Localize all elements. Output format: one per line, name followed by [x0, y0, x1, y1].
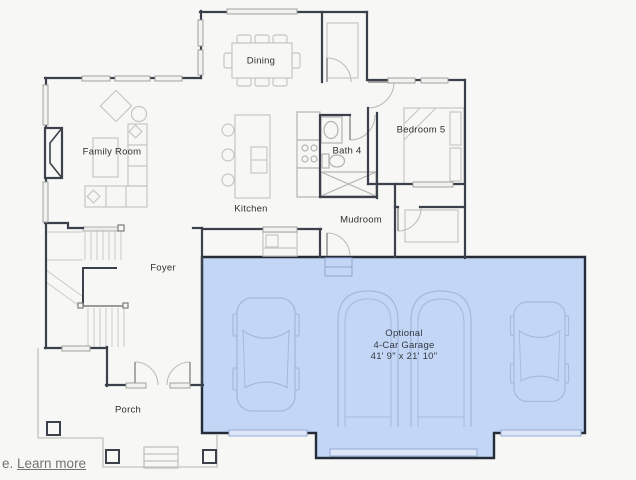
garage-label-line1: Optional: [371, 328, 438, 340]
footer-text-fragment: e.: [2, 456, 13, 471]
garage-door-center: [330, 449, 477, 456]
sofa-icon: [85, 124, 147, 207]
kitchen-counter-icon: [297, 112, 320, 197]
room-label-family-room: Family Room: [83, 147, 142, 158]
armchair-icon: [100, 90, 131, 121]
footer-text: e. Learn more: [2, 456, 86, 471]
coffee-table-icon: [93, 138, 118, 177]
fireplace-icon: [45, 128, 62, 178]
garage-door-right: [501, 430, 581, 436]
pantry-shelf-icon: [327, 23, 358, 78]
bed-icon: [404, 108, 464, 184]
kitchen-island-icon: [222, 115, 270, 198]
room-label-kitchen: Kitchen: [234, 204, 267, 215]
room-label-bath-4: Bath 4: [333, 146, 362, 157]
parked-car-icon: [233, 298, 299, 411]
room-label-porch: Porch: [115, 405, 141, 416]
garage-label: Optional 4-Car Garage 41' 9" x 21' 10": [371, 328, 438, 363]
room-label-dining: Dining: [247, 56, 275, 67]
learn-more-link[interactable]: Learn more: [17, 456, 86, 471]
side-table-icon: [132, 107, 147, 122]
room-label-bedroom-5: Bedroom 5: [397, 125, 446, 136]
parked-car-icon: [510, 302, 568, 401]
floor-plan-drawing: [0, 0, 636, 480]
room-label-foyer: Foyer: [150, 263, 176, 274]
garage-label-line3: 41' 9" x 21' 10": [371, 351, 438, 363]
garage-door-left: [229, 430, 307, 436]
floor-plan-page: Dining Family Room Bedroom 5 Bath 4 Kitc…: [0, 0, 636, 480]
room-label-mudroom: Mudroom: [340, 215, 382, 226]
staircase-icon: [46, 225, 128, 347]
mudroom-bench-icon: [263, 232, 297, 256]
garage-label-line2: 4-Car Garage: [371, 339, 438, 351]
porch-steps-icon: [144, 447, 178, 468]
